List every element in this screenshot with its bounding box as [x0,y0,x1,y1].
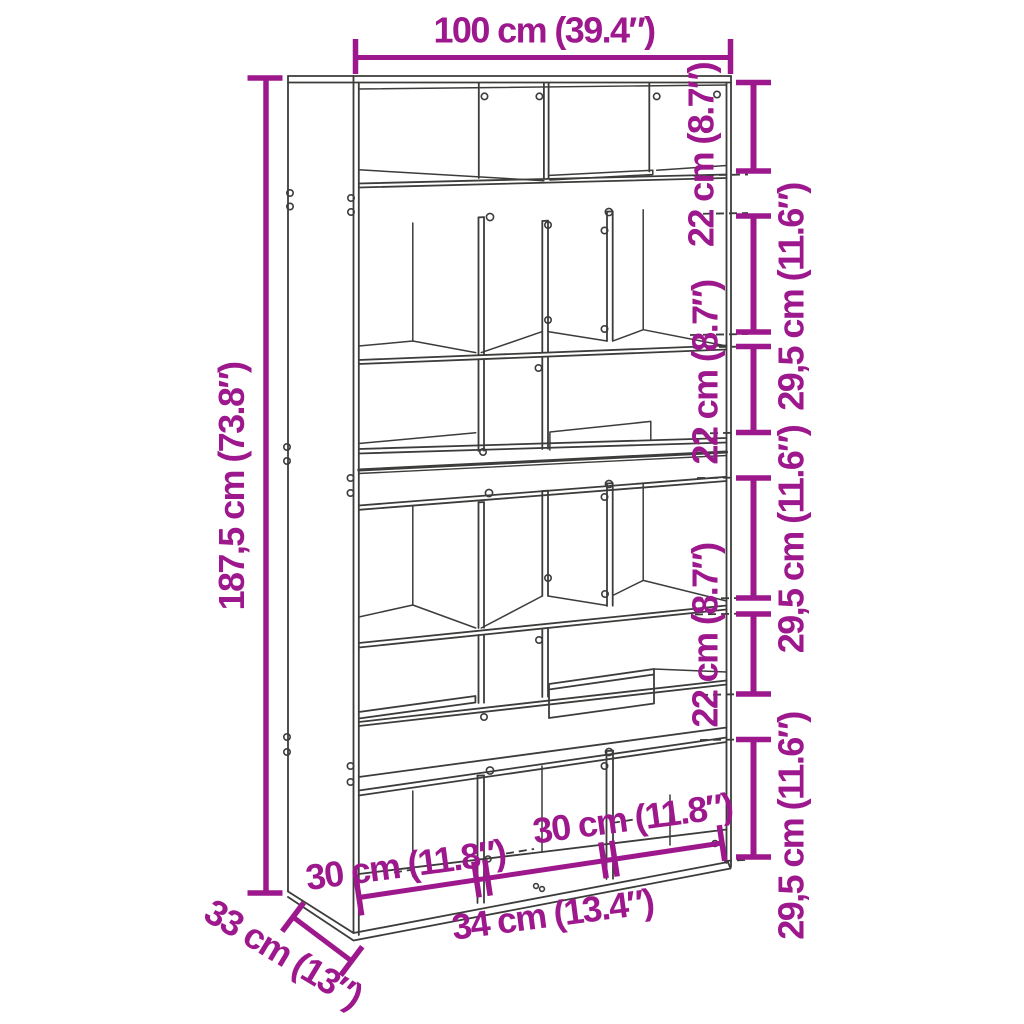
svg-text:22 cm (8.7″): 22 cm (8.7″) [681,62,722,247]
svg-text:29,5 cm (11.6″): 29,5 cm (11.6″) [771,712,812,940]
svg-text:100 cm (39.4″): 100 cm (39.4″) [434,10,656,51]
svg-text:187,5 cm (73.8″): 187,5 cm (73.8″) [211,362,252,610]
svg-text:29,5 cm (11.6″): 29,5 cm (11.6″) [771,425,812,653]
svg-text:29,5 cm (11.6″): 29,5 cm (11.6″) [771,183,812,411]
svg-text:22 cm (8.7″): 22 cm (8.7″) [685,543,726,728]
svg-text:22 cm (8.7″): 22 cm (8.7″) [685,280,726,465]
